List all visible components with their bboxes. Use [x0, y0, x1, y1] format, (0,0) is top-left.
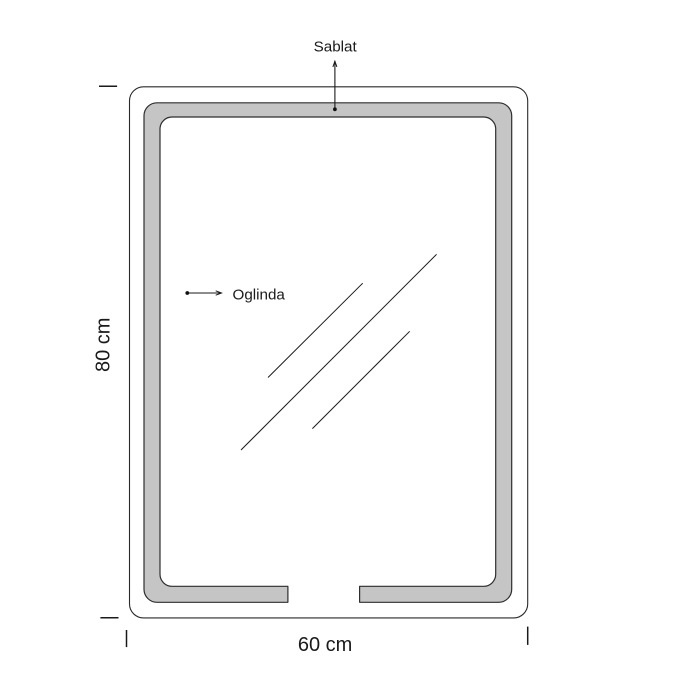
- svg-text:60 cm: 60 cm: [298, 634, 352, 656]
- svg-text:Oglinda: Oglinda: [233, 287, 286, 304]
- svg-text:80 cm: 80 cm: [93, 318, 115, 372]
- svg-text:Sablat: Sablat: [314, 39, 358, 56]
